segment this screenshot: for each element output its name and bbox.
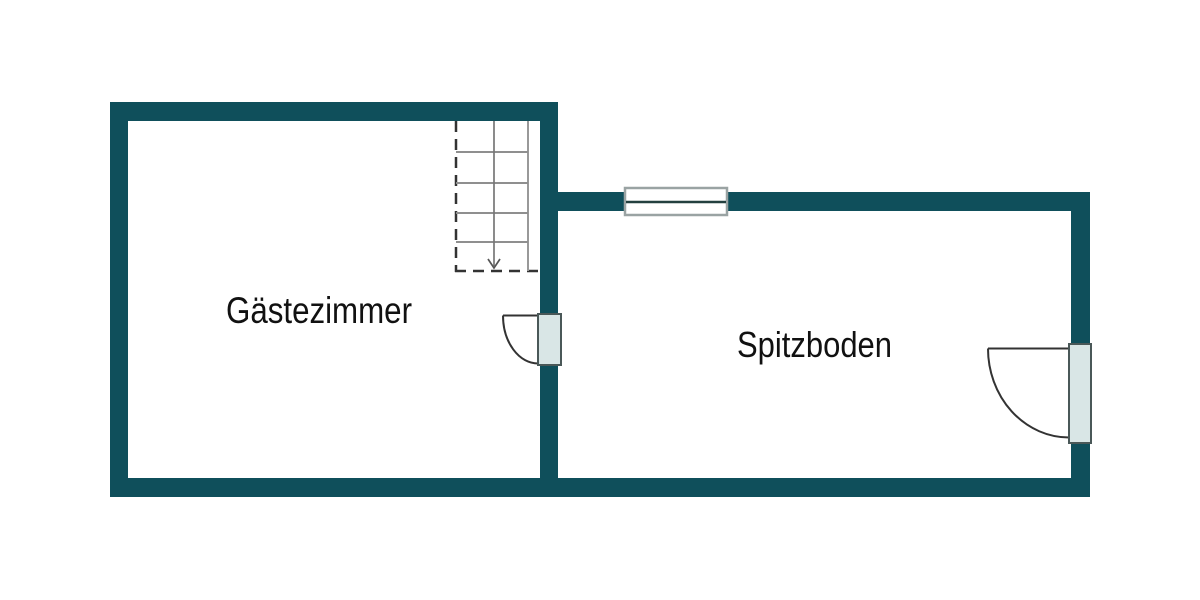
svg-text:Spitzboden: Spitzboden: [737, 324, 892, 365]
svg-text:Gästezimmer: Gästezimmer: [226, 290, 412, 331]
